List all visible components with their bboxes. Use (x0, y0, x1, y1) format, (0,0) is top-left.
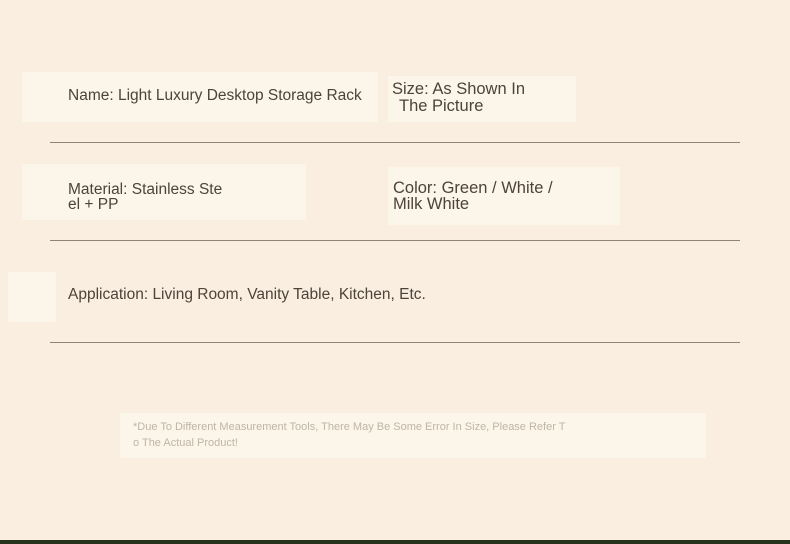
spec-color-line1: Color: Green / White / (393, 180, 553, 196)
spec-color: Color: Green / White / Milk White (393, 180, 553, 212)
spec-color-line2: Milk White (393, 196, 553, 212)
highlight-box-application (8, 272, 56, 322)
spec-product-name: Name: Light Luxury Desktop Storage Rack (68, 87, 362, 105)
spec-application: Application: Living Room, Vanity Table, … (68, 286, 426, 304)
divider-middle (50, 240, 740, 241)
spec-size: Size: As Shown In The Picture (392, 81, 525, 114)
measurement-disclaimer: *Due To Different Measurement Tools, The… (133, 420, 565, 451)
spec-size-line2: The Picture (392, 98, 525, 115)
bottom-edge-bar (0, 540, 790, 544)
disclaimer-line1: *Due To Different Measurement Tools, The… (133, 420, 565, 436)
disclaimer-line2: o The Actual Product! (133, 436, 565, 452)
product-spec-panel: Name: Light Luxury Desktop Storage Rack … (0, 0, 790, 544)
divider-bottom (50, 342, 740, 343)
spec-size-line1: Size: As Shown In (392, 81, 525, 98)
spec-material: Material: Stainless Ste el + PP (68, 182, 222, 212)
divider-top (50, 142, 740, 143)
spec-material-line2: el + PP (68, 197, 222, 212)
spec-material-line1: Material: Stainless Ste (68, 182, 222, 197)
